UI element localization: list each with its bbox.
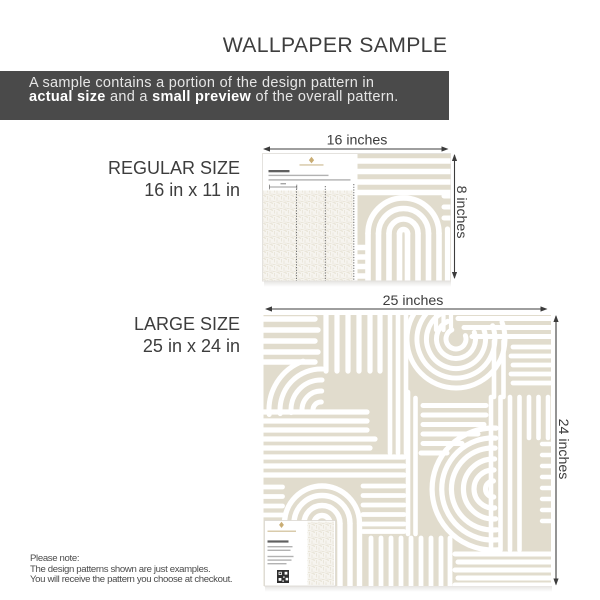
- svg-text:25 inches: 25 inches: [383, 293, 444, 309]
- svg-text:24 inches: 24 inches: [555, 419, 571, 480]
- svg-text:8 inches: 8 inches: [453, 186, 469, 239]
- svg-text:16 inches: 16 inches: [327, 133, 388, 149]
